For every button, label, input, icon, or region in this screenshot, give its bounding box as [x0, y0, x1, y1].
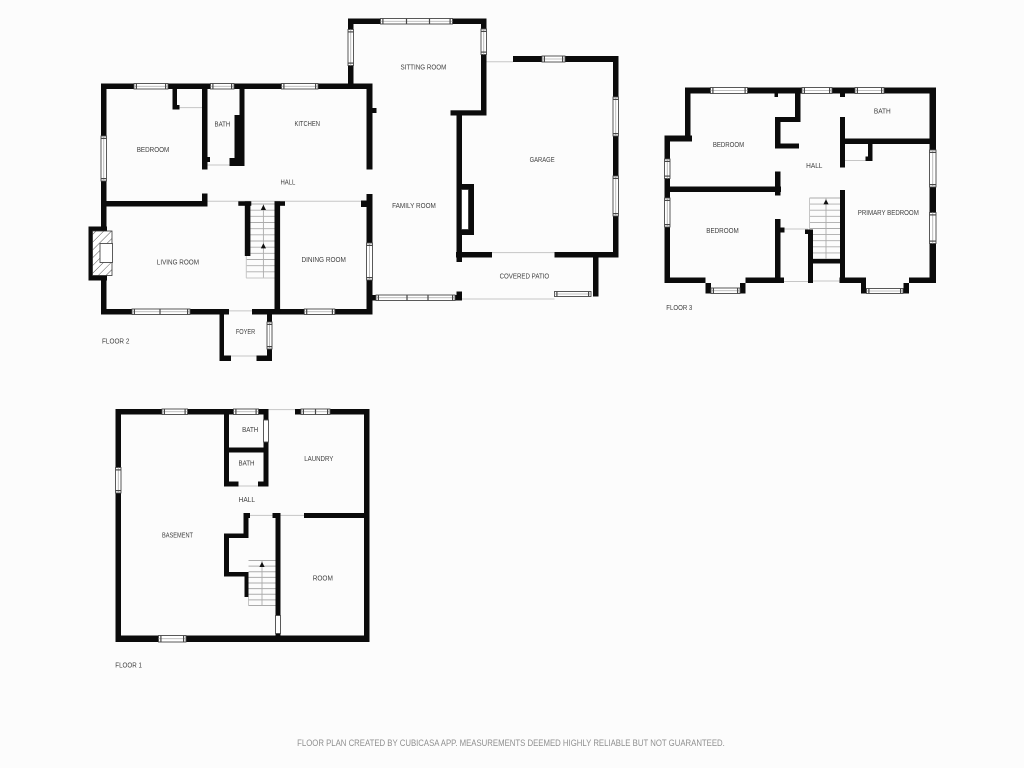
svg-text:HALL: HALL: [806, 161, 822, 170]
svg-text:FLOOR PLAN CREATED BY CUBICASA: FLOOR PLAN CREATED BY CUBICASA APP. MEAS…: [297, 738, 725, 748]
svg-text:BATH: BATH: [242, 425, 258, 434]
svg-text:PRIMARY BEDROOM: PRIMARY BEDROOM: [858, 208, 919, 217]
svg-text:BASEMENT: BASEMENT: [162, 531, 193, 540]
svg-text:BATH: BATH: [238, 459, 254, 468]
svg-text:BEDROOM: BEDROOM: [137, 145, 170, 154]
svg-text:BEDROOM: BEDROOM: [713, 140, 744, 149]
svg-text:FLOOR 1: FLOOR 1: [115, 660, 142, 669]
svg-text:HALL: HALL: [239, 495, 255, 504]
svg-text:DINING ROOM: DINING ROOM: [301, 255, 346, 264]
svg-text:FAMILY ROOM: FAMILY ROOM: [392, 201, 436, 210]
svg-text:BATH: BATH: [874, 107, 891, 116]
svg-text:KITCHEN: KITCHEN: [294, 119, 320, 128]
svg-text:BEDROOM: BEDROOM: [706, 226, 739, 235]
svg-text:FLOOR 2: FLOOR 2: [102, 336, 129, 345]
svg-text:ROOM: ROOM: [313, 573, 333, 582]
svg-text:COVERED PATIO: COVERED PATIO: [500, 271, 550, 280]
svg-text:SITTING ROOM: SITTING ROOM: [400, 63, 446, 72]
svg-text:FLOOR 3: FLOOR 3: [666, 303, 692, 312]
svg-text:LIVING ROOM: LIVING ROOM: [157, 257, 199, 266]
svg-text:LAUNDRY: LAUNDRY: [304, 454, 333, 463]
svg-text:BATH: BATH: [215, 120, 231, 129]
svg-text:GARAGE: GARAGE: [530, 155, 555, 164]
svg-text:HALL: HALL: [280, 178, 295, 187]
svg-text:FOYER: FOYER: [236, 327, 255, 336]
